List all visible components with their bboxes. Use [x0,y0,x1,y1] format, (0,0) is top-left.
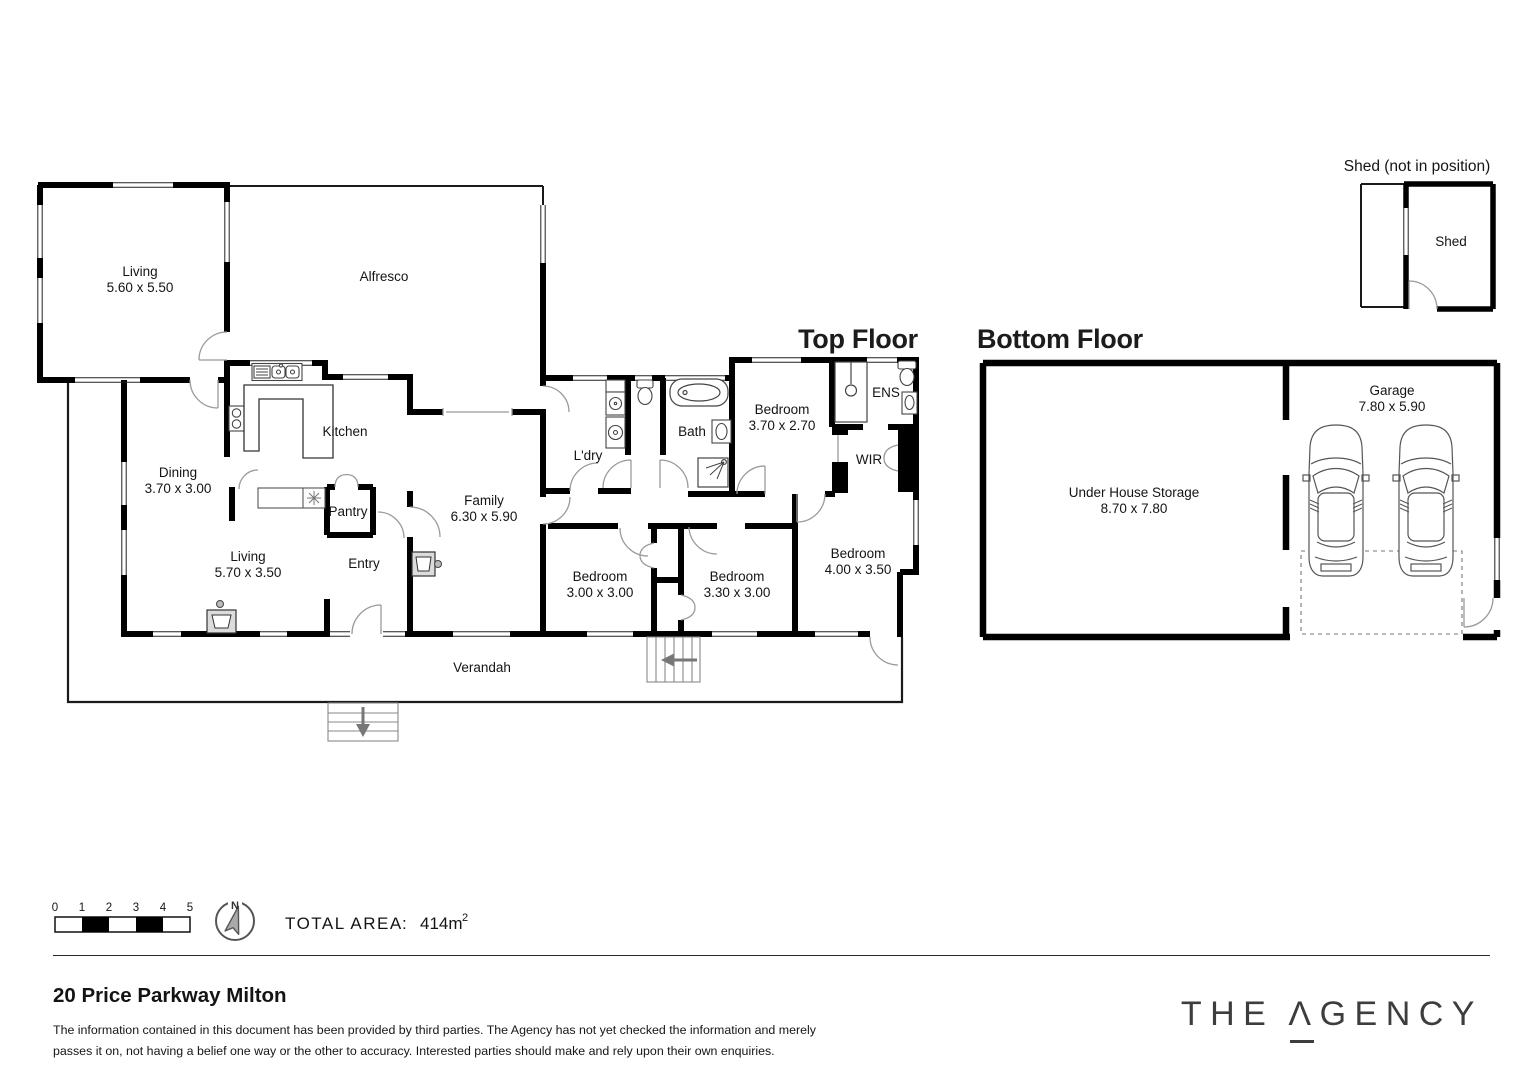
bottom-floor-windows [1495,538,1499,580]
room-dims-family: 6.30 x 5.90 [451,509,518,524]
scale-bar: 0 1 2 3 4 5 [52,902,193,932]
room-label-verandah: Verandah [453,660,511,675]
room-dims-dining: 3.70 x 3.00 [145,481,212,496]
total-area: TOTAL AREA : 414m 2 [285,912,468,933]
shed-door-arc [1409,281,1437,309]
room-label-ldry: L'dry [574,448,603,463]
total-area-value: 414m [420,914,463,933]
room-dims-bed2: 3.00 x 3.00 [567,585,634,600]
scale-tick-0: 0 [52,902,58,914]
floorplan-drawing: Top Floor Living 5.60 x 5.50 Alfresco Ki… [0,0,1528,960]
shed-thin-walls [1361,184,1406,307]
room-dims-living1: 5.60 x 5.50 [107,280,174,295]
top-floor-plan: Top Floor Living 5.60 x 5.50 Alfresco Ki… [37,183,919,741]
room-dims-living2: 5.70 x 3.50 [215,565,282,580]
fireplace [412,552,442,576]
shed-window [1404,208,1408,255]
car-icon [1393,425,1459,576]
room-label-bath: Bath [678,424,706,439]
footer-divider [53,955,1490,956]
room-label-living2: Living [230,549,265,564]
room-label-pantry: Pantry [328,504,367,519]
room-dims-bed1: 3.70 x 2.70 [749,418,816,433]
room-label-alfresco: Alfresco [360,269,409,284]
total-area-superscript: 2 [462,912,468,924]
ens-sink [902,392,917,414]
scale-tick-3: 3 [133,902,139,914]
floorplan-document: Top Floor Living 5.60 x 5.50 Alfresco Ki… [0,0,1528,1080]
snowflake-icon [307,491,321,505]
scale-tick-4: 4 [160,902,167,914]
stairs-side [647,637,700,682]
shed-title: Shed (not in position) [1344,158,1490,175]
bath-shower [698,458,728,487]
disclaimer-line-2: passes it on, not having a belief one wa… [53,1041,816,1062]
room-label-family: Family [464,493,504,508]
room-label-wir: WIR [856,452,882,467]
room-label-entry: Entry [348,556,380,571]
ens-toilet [898,361,916,386]
scale-tick-1: 1 [79,902,85,914]
room-label-shed: Shed [1435,234,1467,249]
bottom-floor-door-arcs [1464,598,1493,627]
garage-cars [1303,425,1459,576]
disclaimer-text: The information contained in this docume… [53,1020,816,1061]
room-label-garage: Garage [1369,383,1414,398]
top-floor-title: Top Floor [798,324,919,354]
stairs-front [328,703,398,741]
bathtub [670,379,728,406]
logo-letter-a: Λ [1288,995,1319,1034]
scale-tick-2: 2 [106,902,112,914]
room-dims-bed3: 3.30 x 3.00 [704,585,771,600]
bottom-floor-title: Bottom Floor [977,324,1144,354]
logo-word-the: THE [1181,995,1275,1033]
agency-logo: THEΛGENCY [1181,995,1483,1034]
north-label: N [231,900,239,912]
total-area-label: TOTAL AREA [285,914,403,933]
north-arrow-icon: N [216,898,254,940]
room-label-kitchen: Kitchen [322,424,367,439]
wc-toilet [637,380,653,405]
room-label-storage: Under House Storage [1069,485,1200,500]
fireplace [207,601,236,634]
room-dims-storage: 8.70 x 7.80 [1101,501,1168,516]
room-dims-garage: 7.80 x 5.90 [1359,399,1426,414]
logo-word-gency: GENCY [1320,995,1483,1033]
room-label-bed2: Bedroom [573,569,628,584]
property-address: 20 Price Parkway Milton [53,984,287,1008]
room-label-dining: Dining [159,465,197,480]
shed-plan: Shed (not in position) Shed [1344,158,1493,309]
laundry-appliances [606,380,625,448]
room-label-living1: Living [122,264,157,279]
kitchen-sink [252,364,302,381]
room-label-ens: ENS [872,385,900,400]
alfresco-balustrade [230,186,543,205]
kitchen-island [244,385,333,458]
room-label-bed4: Bedroom [831,546,886,561]
car-icon [1303,425,1369,576]
bottom-floor-plan: Bottom Floor Under House Storage 8.70 x … [977,324,1499,637]
total-area-separator: : [402,914,407,933]
room-label-bed3: Bedroom [710,569,765,584]
room-dims-bed4: 4.00 x 3.50 [825,562,892,577]
ens-shower [835,362,867,422]
disclaimer-line-1: The information contained in this docume… [53,1020,816,1041]
scale-tick-5: 5 [187,902,193,914]
bath-vanity [712,420,731,443]
room-label-bed1: Bedroom [755,402,810,417]
